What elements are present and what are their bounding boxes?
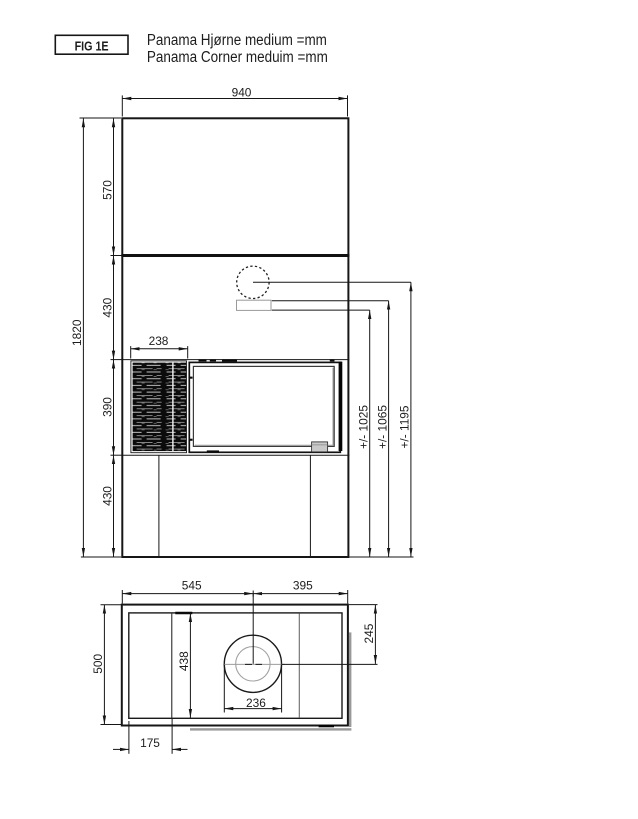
svg-text:1820: 1820 <box>70 319 84 346</box>
svg-text:245: 245 <box>362 623 376 643</box>
svg-text:+/- 1195: +/- 1195 <box>398 405 412 448</box>
svg-text:430: 430 <box>100 486 114 506</box>
svg-text:395: 395 <box>293 579 313 593</box>
svg-text:236: 236 <box>246 696 266 710</box>
svg-text:390: 390 <box>100 397 114 417</box>
svg-text:+/- 1065: +/- 1065 <box>375 405 389 449</box>
svg-text:438: 438 <box>177 651 191 671</box>
svg-text:500: 500 <box>91 653 105 673</box>
svg-text:570: 570 <box>101 180 115 200</box>
svg-text:430: 430 <box>100 297 114 317</box>
svg-text:545: 545 <box>182 579 202 593</box>
svg-text:Panama Corner meduim =mm: Panama Corner meduim =mm <box>147 49 328 66</box>
svg-text:238: 238 <box>149 334 169 348</box>
svg-text:175: 175 <box>140 736 160 750</box>
svg-text:+/- 1025: +/- 1025 <box>357 405 371 449</box>
svg-text:940: 940 <box>232 86 252 100</box>
svg-text:Panama Hjørne medium =mm: Panama Hjørne medium =mm <box>147 32 327 49</box>
svg-text:FIG 1E: FIG 1E <box>75 39 109 54</box>
